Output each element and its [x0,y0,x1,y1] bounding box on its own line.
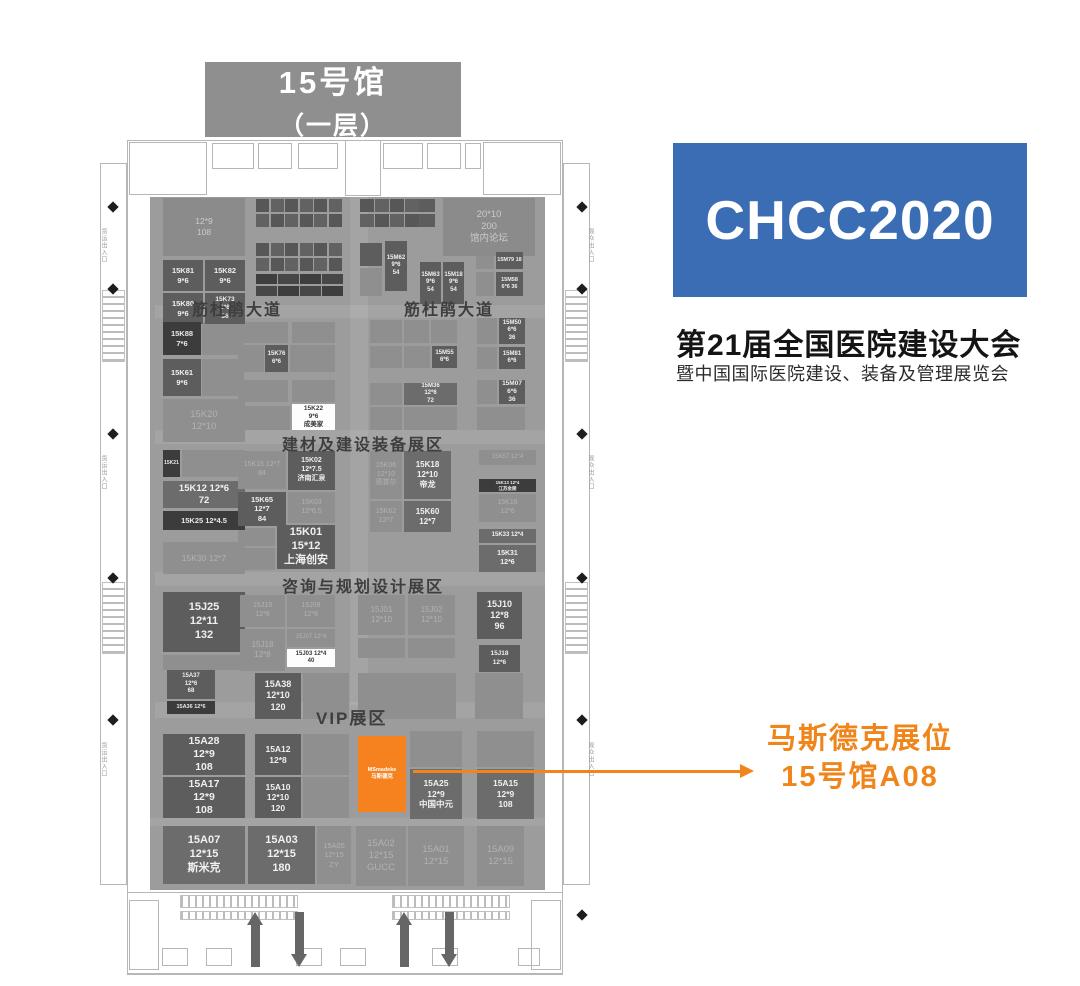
booth-block [477,407,525,430]
arrow-head [291,954,307,967]
booth-15M81: 15M81 6*6 [499,347,525,369]
entrance-label: 货运出入口 [99,455,108,490]
booth-15K65: 15K65 12*7 84 [238,492,286,526]
booth-block [475,673,523,719]
booth-15K22: 15K22 9*6 成美家 [292,404,335,430]
booth-12*9: 12*9 108 [163,198,245,256]
booth-cell [285,214,298,227]
booth-block [238,345,264,372]
zone-label: 咨询与规划设计展区 [282,573,444,597]
booth-cell [314,214,327,227]
booth-15A03: 15A03 12*15 180 [248,826,315,884]
arrow-stem [400,924,409,967]
booth-block [404,346,430,368]
booth-cell [285,199,298,212]
hall-title-box: 15号馆 （一层） [205,62,461,137]
booth-15M07: 15M07 6*6 36 [499,380,525,404]
booth-cell [322,274,343,284]
booth-15K76: 15K76 6*6 [265,345,288,372]
booth-cell [300,258,313,271]
booth-15A37: 15A37 12*6 68 [167,670,215,699]
booth-15K13: 15K13 12*4 江苏金陵 [479,479,536,492]
booth-15J01: 15J01 12*10 [358,595,405,635]
booth-cell [256,243,269,256]
arch-detail [565,582,588,654]
arch-detail [427,143,461,169]
zone-label: 筋杜鹃大道 [404,296,494,320]
booth-block [419,199,435,212]
arrow-stem [445,912,454,955]
booth-15A36: 15A36 12*6 [167,701,215,714]
booth-block [292,322,335,343]
booth-cell [300,214,313,227]
down-arrow-icon [441,912,458,967]
arch-detail [340,948,366,966]
entrance-label: 观众出入口 [586,228,595,263]
booth-15K01: 15K01 15*12 上海创安 [277,525,335,569]
entrance-label: 观众出入口 [586,455,595,490]
booth-cell [278,274,299,284]
callout-arrow-line [413,770,740,773]
booth-forum: 20*10 200 馆内论坛 [443,198,535,256]
booth-block [238,380,288,402]
booth-cell [256,286,277,296]
booth-15A17: 15A17 12*9 108 [163,777,245,818]
booth-15K60: 15K60 12*7 [404,501,451,532]
down-arrow-icon [291,912,308,967]
arch-detail [180,895,298,908]
booth-cell [271,258,284,271]
booth-15A12: 15A12 12*8 [255,734,301,775]
booth-block [360,268,382,296]
booth-block [370,383,402,405]
up-arrow-icon [247,912,264,967]
booth-block [182,450,245,477]
booth-15A25: 15A25 12*9 中国中元 [410,769,462,819]
booth-block [303,777,349,818]
booth-15J02: 15J02 12*10 [408,595,455,635]
booth-cell [300,243,313,256]
booth-block [303,734,349,775]
booth-cell [314,258,327,271]
booth-15A09: 15A09 12*15 [477,826,524,886]
booth-15A15: 15A15 12*9 108 [477,769,534,819]
booth-cell [256,258,269,271]
booth-15K02: 15K02 12*7.5 济南汇泉 [288,451,335,490]
arch-detail [465,143,481,169]
booth-block [477,731,534,767]
booth-block [431,320,457,343]
booth-cell [314,243,327,256]
booth-15A02: 15A02 12*15 GUCC [356,826,406,886]
booth-cell [271,214,284,227]
booth-cell [329,214,342,227]
chcc-logo-text: CHCC2020 [705,188,994,252]
booth-block [408,638,455,658]
zone-label: 筋杜鹃大道 [192,296,282,320]
booth-cell [405,199,419,212]
booth-15A07: 15A07 12*15 斯米克 [163,826,245,884]
booth-block [370,320,402,343]
booth-block [238,406,290,430]
booth-15J18-2: 15J18 12*6 [479,645,520,672]
booth-block [476,272,494,296]
booth-block [477,347,497,369]
booth-callout: 马斯德克展位 15号馆A08 [745,720,975,796]
booth-15M62: 15M62 9*6 54 [385,241,407,291]
booth-15K15: 15K15 12*7 84 [238,451,286,489]
arch-detail [345,140,381,196]
booth-block [477,318,497,344]
booth-15K57: 15K57 12*4 [479,450,536,465]
booth-cell [256,214,269,227]
zone-label: VIP展区 [316,704,387,729]
booth-cell [300,286,321,296]
booth-cell [329,243,342,256]
up-arrow-icon [396,912,413,967]
entrance-label: 货运出入口 [99,742,108,777]
booth-15J03: 15J03 12*4 40 [287,649,335,667]
booth-cell [375,199,389,212]
arch-detail [565,290,588,362]
arch-detail [129,900,159,970]
booth-block [360,243,382,266]
floorplan-canvas: 15号馆 （一层） 12*9 10820*10 200 馆内论坛15K81 9*… [0,0,1080,986]
aisle [150,818,545,826]
booth-15K16: 15K16 12*6 [479,494,536,522]
arch-detail [258,143,292,169]
arrow-head [441,954,457,967]
booth-block [358,638,405,658]
booth-block [370,407,402,430]
booth-15M50: 15M50 6*6 36 [499,318,525,344]
booth-cell [329,258,342,271]
booth-block [404,407,457,430]
booth-15K61: 15K61 9*6 [163,359,201,396]
conference-title: 第21届全国医院建设大会 [676,320,1021,364]
booth-15J18: 15J18 12*8 [240,629,285,671]
booth-15K81: 15K81 9*6 [163,260,203,291]
booth-cell [300,199,313,212]
booth-block [419,214,435,227]
booth-15K62: 15K62 12*7 [370,501,402,532]
booth-15M36: 15M36 12*6 72 [404,383,457,405]
chcc-logo-box: CHCC2020 [673,143,1027,297]
arch-detail [180,911,298,920]
arch-detail [102,582,125,654]
booth-15K06: 15K06 12*10 德普尔 [370,451,402,499]
booth-cell [375,214,389,227]
booth-cell [271,199,284,212]
booth-15K31: 15K31 12*6 [479,545,536,572]
arch-detail [212,143,254,169]
callout-line1: 马斯德克展位 [745,720,975,758]
callout-arrowhead-icon [740,764,754,778]
booth-15K82: 15K82 9*6 [205,260,245,291]
booth-block [477,380,497,404]
arch-detail [392,895,510,908]
hall-floorplan: 15号馆 （一层） 12*9 10820*10 200 馆内论坛15K81 9*… [0,0,640,986]
arrow-head [247,912,263,925]
booth-15K20: 15K20 12*10 [163,399,245,442]
booth-block [404,320,429,343]
booth-15J07: 15J07 12*4 [287,629,335,647]
callout-line2: 15号馆A08 [745,758,975,796]
booth-cell [322,286,343,296]
booth-cell [256,274,277,284]
booth-15M58: 15M58 6*6 36 [496,272,523,296]
booth-cell [405,214,419,227]
booth-cell [271,243,284,256]
arrow-stem [251,924,260,967]
entrance-label: 货运出入口 [99,228,108,263]
booth-cell [360,199,374,212]
booth-15J19: 15J19 12*6 [240,595,285,627]
booth-15J09: 15J09 12*6 [287,595,335,627]
arrow-stem [295,912,304,955]
booth-cell [390,199,404,212]
booth-cell [390,214,404,227]
arch-detail [483,142,561,195]
booth-block [163,655,245,670]
booth-cell [285,258,298,271]
hall-name: 15号馆 [205,57,461,102]
booth-15K21: 15K21 [163,450,180,477]
arch-detail [298,143,338,169]
arch-detail [162,948,188,966]
booth-15K33: 15K33 12*4 [479,529,536,543]
booth-15A10: 15A10 12*10 120 [255,777,301,818]
arrow-head [396,912,412,925]
booth-15A05: 15A05 12*15 ZY [317,826,351,884]
booth-15K12: 15K12 12*6 72 [163,481,245,508]
booth-15A38: 15A38 12*10 120 [255,673,301,719]
booth-cell [285,243,298,256]
arch-detail [383,143,423,169]
booth-15K03: 15K03 12*6.5 [288,492,335,523]
arch-detail [127,892,563,893]
booth-15K18: 15K18 12*10 帝龙 [404,451,451,499]
booth-15M79: 15M79 18 [496,252,523,269]
arch-detail [206,948,232,966]
booth-15K25: 15K25 12*4.5 [163,511,245,530]
hall-floor: （一层） [205,106,461,142]
booth-cell [329,199,342,212]
booth-15A28: 15A28 12*9 108 [163,734,245,775]
zone-label: 建材及建设装备展区 [282,431,444,455]
booth-block [238,322,288,343]
arch-detail [531,900,561,970]
booth-15K88: 15K88 7*6 [163,322,201,355]
booth-cell [314,199,327,212]
booth-15J25: 15J25 12*11 132 [163,592,245,652]
booth-15A01: 15A01 12*15 [408,826,464,886]
booth-block [290,345,335,372]
booth-block [292,380,335,402]
entrance-diamond-icon [576,909,587,920]
booth-block [370,346,402,368]
arch-detail [129,142,207,195]
arch-detail [127,973,563,974]
conference-subtitle: 暨中国国际医院建设、装备及管理展览会 [676,360,1009,386]
booth-15J10: 15J10 12*8 96 [477,592,522,639]
booth-15K30: 15K30 12*7 [163,542,245,574]
booth-cell [256,199,269,212]
booth-block [410,731,462,767]
arch-detail [102,290,125,362]
booth-cell [278,286,299,296]
booth-cell [360,214,374,227]
booth-15M55: 15M55 6*6 [432,346,457,368]
booth-cell [300,274,321,284]
booth-15A08-masdeke: MSmadeke 马斯德克 [358,736,406,812]
